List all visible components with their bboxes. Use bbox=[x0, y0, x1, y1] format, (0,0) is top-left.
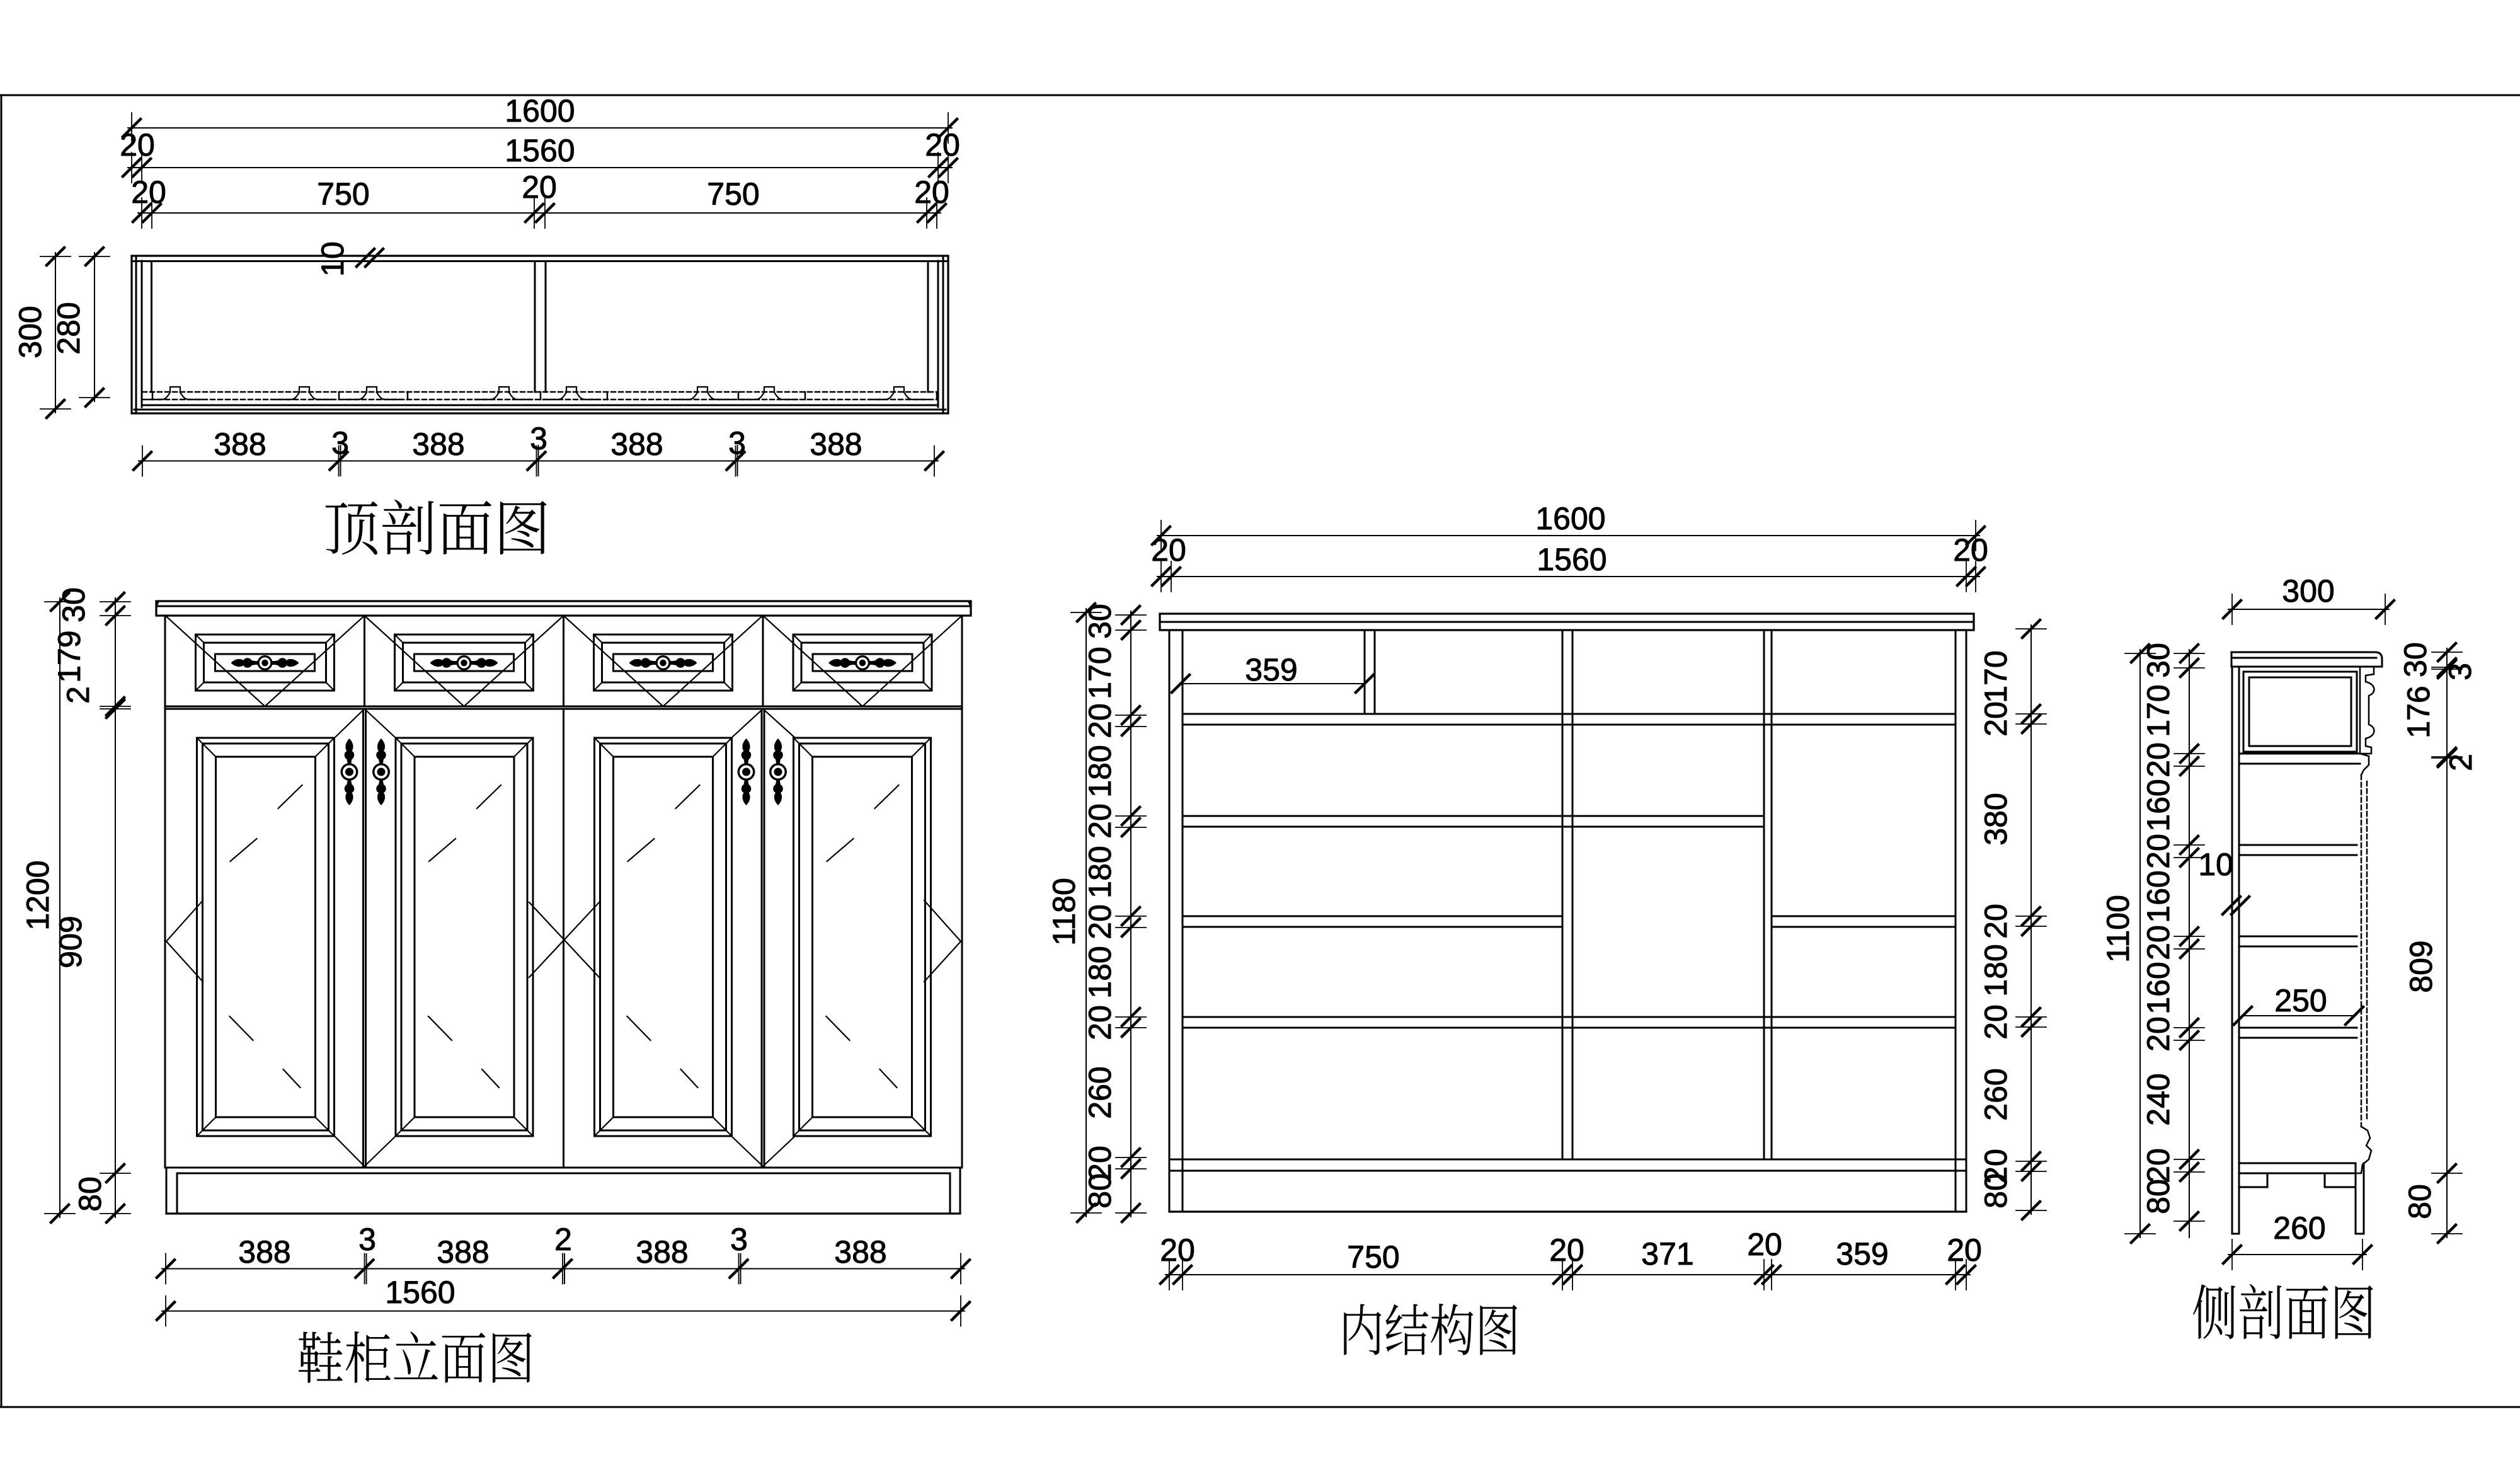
svg-text:750: 750 bbox=[1347, 1239, 1399, 1275]
svg-text:388: 388 bbox=[834, 1234, 886, 1270]
svg-text:3: 3 bbox=[358, 1222, 376, 1257]
svg-text:388: 388 bbox=[238, 1234, 290, 1270]
svg-text:80: 80 bbox=[2402, 1184, 2437, 1219]
svg-text:180: 180 bbox=[1082, 745, 1118, 797]
svg-text:909: 909 bbox=[53, 916, 88, 968]
svg-text:20: 20 bbox=[1082, 703, 1118, 738]
svg-text:160: 160 bbox=[2141, 779, 2176, 831]
svg-text:20: 20 bbox=[1082, 904, 1118, 939]
svg-text:20: 20 bbox=[1747, 1227, 1782, 1262]
svg-text:20: 20 bbox=[1978, 904, 2013, 939]
svg-text:750: 750 bbox=[707, 176, 759, 212]
svg-text:3: 3 bbox=[530, 421, 547, 456]
svg-text:280: 280 bbox=[51, 302, 86, 354]
svg-text:388: 388 bbox=[810, 427, 862, 462]
svg-text:300: 300 bbox=[2282, 573, 2334, 609]
svg-text:1100: 1100 bbox=[2100, 895, 2136, 963]
svg-text:300: 300 bbox=[13, 306, 48, 358]
svg-text:180: 180 bbox=[1082, 846, 1118, 898]
svg-text:20: 20 bbox=[914, 175, 949, 210]
svg-text:3: 3 bbox=[331, 425, 349, 461]
svg-text:359: 359 bbox=[1836, 1236, 1888, 1272]
svg-text:20: 20 bbox=[1978, 1004, 2013, 1040]
svg-text:20: 20 bbox=[1151, 532, 1186, 568]
svg-text:20: 20 bbox=[1978, 701, 2013, 737]
svg-text:176: 176 bbox=[2401, 686, 2436, 738]
svg-text:20: 20 bbox=[2141, 834, 2176, 869]
svg-text:10: 10 bbox=[315, 241, 350, 277]
svg-text:240: 240 bbox=[2141, 1073, 2176, 1125]
svg-text:20: 20 bbox=[2141, 925, 2176, 960]
svg-text:3: 3 bbox=[2443, 663, 2478, 681]
svg-text:170: 170 bbox=[1978, 650, 2013, 703]
svg-text:1600: 1600 bbox=[505, 93, 575, 129]
svg-text:20: 20 bbox=[1549, 1232, 1584, 1268]
svg-text:20: 20 bbox=[2141, 1148, 2176, 1183]
svg-text:371: 371 bbox=[1641, 1236, 1693, 1272]
svg-text:170: 170 bbox=[2141, 684, 2176, 737]
svg-text:20: 20 bbox=[2141, 1016, 2176, 1052]
svg-text:180: 180 bbox=[1082, 946, 1118, 998]
svg-text:20: 20 bbox=[2141, 742, 2176, 778]
svg-text:359: 359 bbox=[1245, 652, 1297, 687]
svg-text:180: 180 bbox=[1978, 944, 2013, 996]
svg-text:1180: 1180 bbox=[1046, 878, 1082, 946]
svg-text:2: 2 bbox=[60, 686, 96, 704]
svg-text:1560: 1560 bbox=[505, 133, 575, 168]
svg-text:20: 20 bbox=[1082, 1005, 1118, 1040]
svg-text:20: 20 bbox=[131, 175, 166, 210]
svg-text:20: 20 bbox=[1082, 803, 1118, 839]
svg-text:260: 260 bbox=[1978, 1068, 2013, 1120]
svg-text:2: 2 bbox=[554, 1222, 572, 1257]
svg-text:30: 30 bbox=[56, 587, 91, 623]
svg-text:260: 260 bbox=[2273, 1210, 2325, 1246]
svg-text:160: 160 bbox=[2141, 870, 2176, 922]
svg-text:3: 3 bbox=[728, 425, 746, 461]
svg-text:179: 179 bbox=[52, 630, 87, 682]
svg-text:388: 388 bbox=[214, 427, 266, 462]
svg-text:1200: 1200 bbox=[20, 860, 55, 930]
svg-text:30: 30 bbox=[2398, 642, 2433, 677]
svg-text:380: 380 bbox=[1978, 793, 2013, 845]
svg-text:80: 80 bbox=[2141, 1179, 2176, 1214]
svg-text:388: 388 bbox=[610, 427, 663, 462]
svg-text:260: 260 bbox=[1082, 1066, 1118, 1118]
svg-text:20: 20 bbox=[1160, 1232, 1195, 1268]
svg-text:20: 20 bbox=[522, 169, 557, 205]
svg-text:388: 388 bbox=[412, 427, 464, 462]
svg-text:20: 20 bbox=[1947, 1232, 1982, 1268]
svg-text:80: 80 bbox=[1082, 1173, 1118, 1209]
svg-text:388: 388 bbox=[437, 1234, 489, 1270]
svg-text:1600: 1600 bbox=[1535, 501, 1605, 536]
svg-text:750: 750 bbox=[317, 176, 369, 212]
svg-text:1560: 1560 bbox=[1537, 542, 1606, 577]
svg-text:30: 30 bbox=[2141, 643, 2176, 678]
svg-text:388: 388 bbox=[636, 1234, 688, 1270]
svg-text:30: 30 bbox=[1082, 604, 1118, 639]
svg-text:20: 20 bbox=[1953, 532, 1988, 568]
svg-text:20: 20 bbox=[925, 127, 960, 163]
svg-text:809: 809 bbox=[2403, 940, 2439, 992]
svg-text:170: 170 bbox=[1082, 646, 1118, 699]
svg-text:160: 160 bbox=[2141, 962, 2176, 1014]
svg-text:80: 80 bbox=[1978, 1173, 2013, 1209]
svg-text:80: 80 bbox=[72, 1176, 108, 1212]
svg-text:2: 2 bbox=[2443, 754, 2478, 771]
svg-text:3: 3 bbox=[730, 1222, 748, 1257]
svg-text:1560: 1560 bbox=[385, 1275, 455, 1310]
svg-text:250: 250 bbox=[2274, 983, 2327, 1018]
svg-text:20: 20 bbox=[120, 127, 155, 163]
svg-text:10: 10 bbox=[2198, 847, 2233, 882]
